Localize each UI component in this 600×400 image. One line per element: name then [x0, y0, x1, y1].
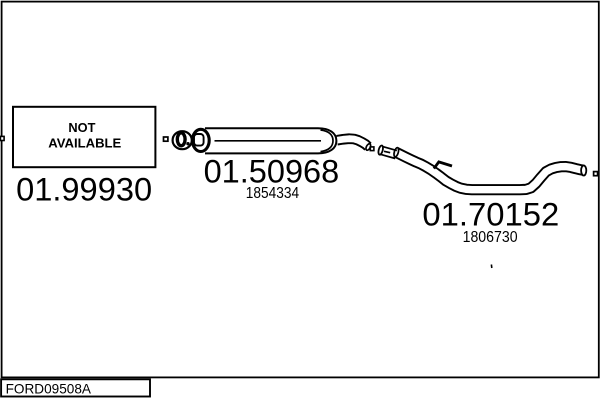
svg-text:NOT: NOT — [68, 120, 95, 135]
svg-text:1854334: 1854334 — [246, 185, 299, 202]
svg-text:1806730: 1806730 — [463, 229, 518, 246]
svg-text:FORD09508A: FORD09508A — [6, 381, 92, 396]
svg-text:01.70152: 01.70152 — [422, 196, 559, 232]
svg-text:AVAILABLE: AVAILABLE — [48, 136, 121, 151]
svg-text:01.99930: 01.99930 — [16, 171, 152, 207]
